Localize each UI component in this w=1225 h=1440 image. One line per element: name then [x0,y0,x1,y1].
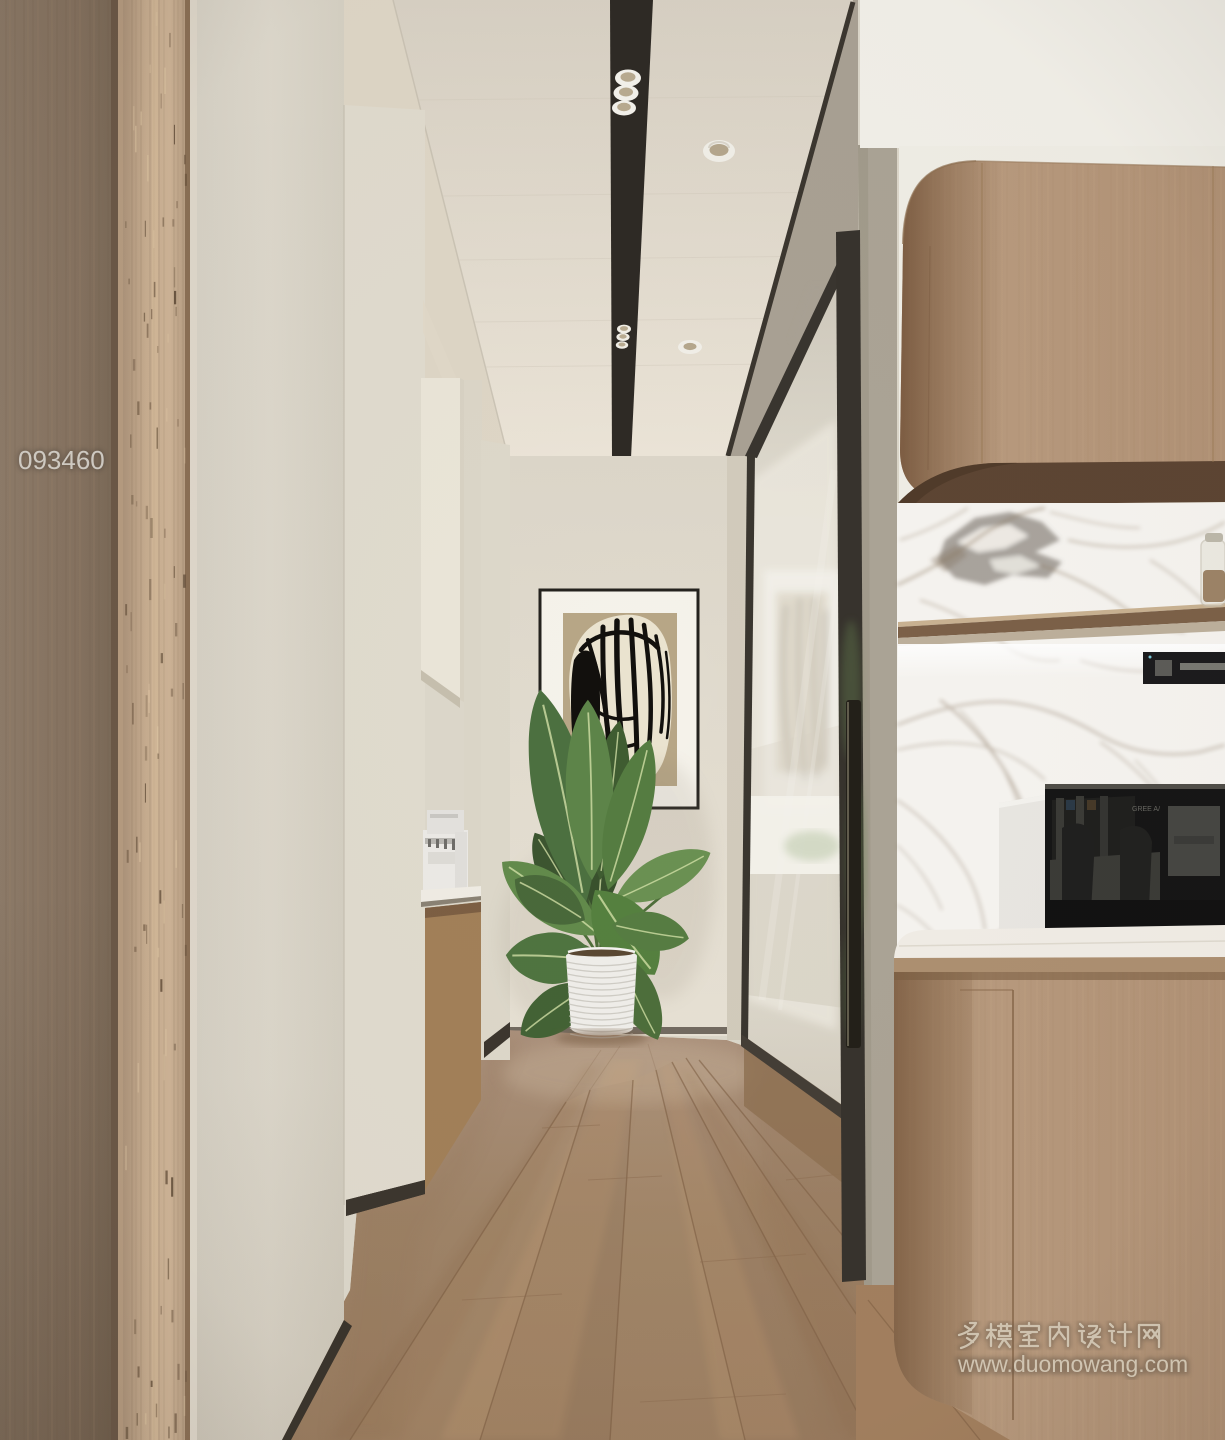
svg-text:093460: 093460 [18,445,105,475]
svg-text:www.duomowang.com: www.duomowang.com [957,1351,1188,1377]
